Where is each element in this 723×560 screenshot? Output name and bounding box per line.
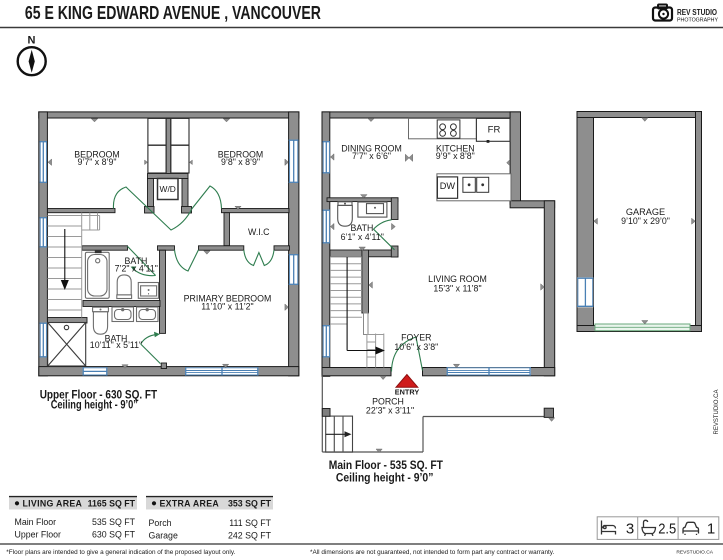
- svg-text:11’10" x 11’2": 11’10" x 11’2": [201, 301, 253, 311]
- svg-text:*Floor plans are intended to g: *Floor plans are intended to give a gene…: [6, 549, 235, 556]
- svg-text:1165 SQ FT: 1165 SQ FT: [88, 499, 136, 509]
- svg-text:6’1" x 4’11": 6’1" x 4’11": [341, 232, 384, 242]
- svg-text:353 SQ FT: 353 SQ FT: [228, 499, 272, 509]
- svg-text:9’10" x 29’0": 9’10" x 29’0": [621, 216, 670, 226]
- svg-text:FOYER: FOYER: [401, 332, 431, 342]
- svg-text:Porch: Porch: [149, 518, 172, 528]
- svg-text:N: N: [28, 35, 36, 47]
- svg-text:DW: DW: [440, 181, 456, 191]
- svg-text:*All dimensions are not guaran: *All dimensions are not guaranteed, not …: [310, 549, 555, 556]
- svg-text:7’2" x 4’11": 7’2" x 4’11": [115, 263, 158, 273]
- svg-text:242 SQ FT: 242 SQ FT: [228, 531, 272, 541]
- svg-text:REVSTUDIO.CA: REVSTUDIO.CA: [714, 389, 720, 434]
- svg-text:22’3" x 3’11": 22’3" x 3’11": [366, 406, 414, 416]
- svg-text:REVSTUDIO.CA: REVSTUDIO.CA: [676, 550, 713, 556]
- svg-text:LIVING AREA: LIVING AREA: [23, 499, 83, 509]
- svg-text:ENTRY: ENTRY: [395, 388, 420, 397]
- svg-text:Main Floor: Main Floor: [15, 517, 57, 527]
- svg-text:W.I.C: W.I.C: [248, 227, 270, 237]
- svg-text:Ceiling height - 9’0”: Ceiling height - 9’0”: [336, 471, 434, 485]
- svg-text:630 SQ FT: 630 SQ FT: [92, 530, 136, 540]
- svg-text:1: 1: [707, 521, 715, 538]
- svg-text:7’7" x 6’6": 7’7" x 6’6": [352, 151, 391, 161]
- svg-text:535 SQ FT: 535 SQ FT: [92, 517, 136, 527]
- svg-text:10’11" x 5’11": 10’11" x 5’11": [90, 340, 142, 350]
- svg-text:3: 3: [626, 521, 634, 538]
- svg-text:111 SQ FT: 111 SQ FT: [229, 518, 271, 528]
- svg-text:Ceiling height - 9’0”: Ceiling height - 9’0”: [51, 398, 138, 412]
- svg-text:65 E KING EDWARD AVENUE , VANC: 65 E KING EDWARD AVENUE , VANCOUVER: [25, 3, 321, 23]
- svg-text:Upper Floor: Upper Floor: [15, 530, 62, 540]
- svg-text:9’7" x 8’9": 9’7" x 8’9": [77, 157, 116, 167]
- svg-text:W/D: W/D: [160, 184, 176, 194]
- svg-text:LIVING ROOM: LIVING ROOM: [428, 274, 487, 284]
- svg-text:10’6" x 3’8": 10’6" x 3’8": [394, 342, 438, 352]
- svg-text:Garage: Garage: [149, 531, 178, 541]
- svg-text:9’9" x 8’8": 9’9" x 8’8": [436, 151, 475, 161]
- svg-text:2.5: 2.5: [658, 521, 676, 538]
- svg-text:9’8" x 8’9": 9’8" x 8’9": [221, 157, 260, 167]
- svg-text:FR: FR: [488, 124, 501, 135]
- svg-text:PHOTOGRAPHY: PHOTOGRAPHY: [677, 18, 718, 24]
- svg-text:REV STUDIO: REV STUDIO: [677, 8, 717, 17]
- svg-text:15’3" x 11’8": 15’3" x 11’8": [433, 283, 481, 293]
- svg-text:EXTRA AREA: EXTRA AREA: [160, 499, 220, 509]
